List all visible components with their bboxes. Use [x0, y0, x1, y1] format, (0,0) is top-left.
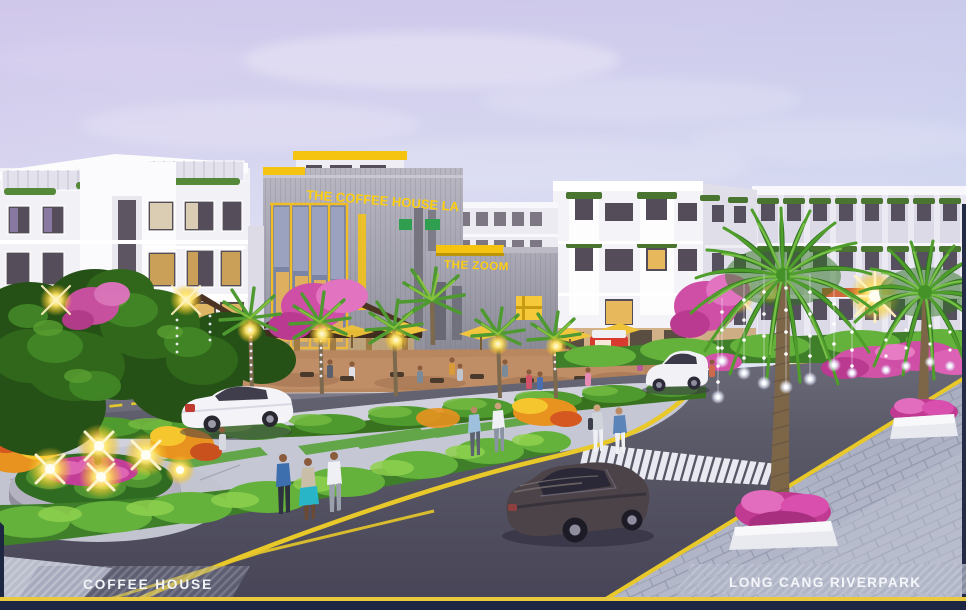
- svg-text:COFFEE HOUSE: COFFEE HOUSE: [83, 577, 213, 592]
- svg-text:THE ZOOM: THE ZOOM: [444, 259, 509, 273]
- svg-text:LONG CANG RIVERPARK: LONG CANG RIVERPARK: [729, 575, 922, 590]
